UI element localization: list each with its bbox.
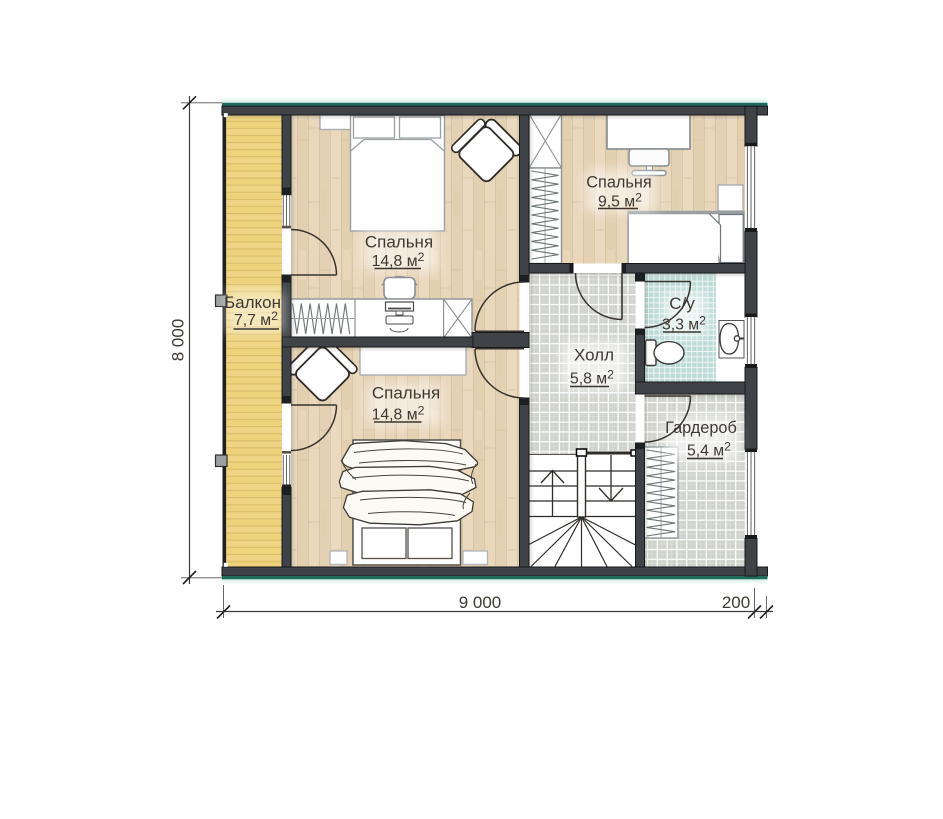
svg-text:Гардероб: Гардероб (665, 419, 737, 437)
svg-text:14,8 м2: 14,8 м2 (372, 404, 425, 424)
svg-text:Холл: Холл (574, 346, 614, 365)
svg-text:Спальня: Спальня (586, 174, 651, 192)
svg-text:200: 200 (722, 593, 750, 612)
svg-text:9 000: 9 000 (459, 593, 502, 612)
svg-text:Спальня: Спальня (365, 233, 433, 252)
svg-text:С/у: С/у (669, 294, 695, 313)
svg-text:14,8 м2: 14,8 м2 (372, 250, 425, 270)
svg-text:8 000: 8 000 (169, 319, 188, 362)
svg-text:Спальня: Спальня (372, 384, 440, 403)
